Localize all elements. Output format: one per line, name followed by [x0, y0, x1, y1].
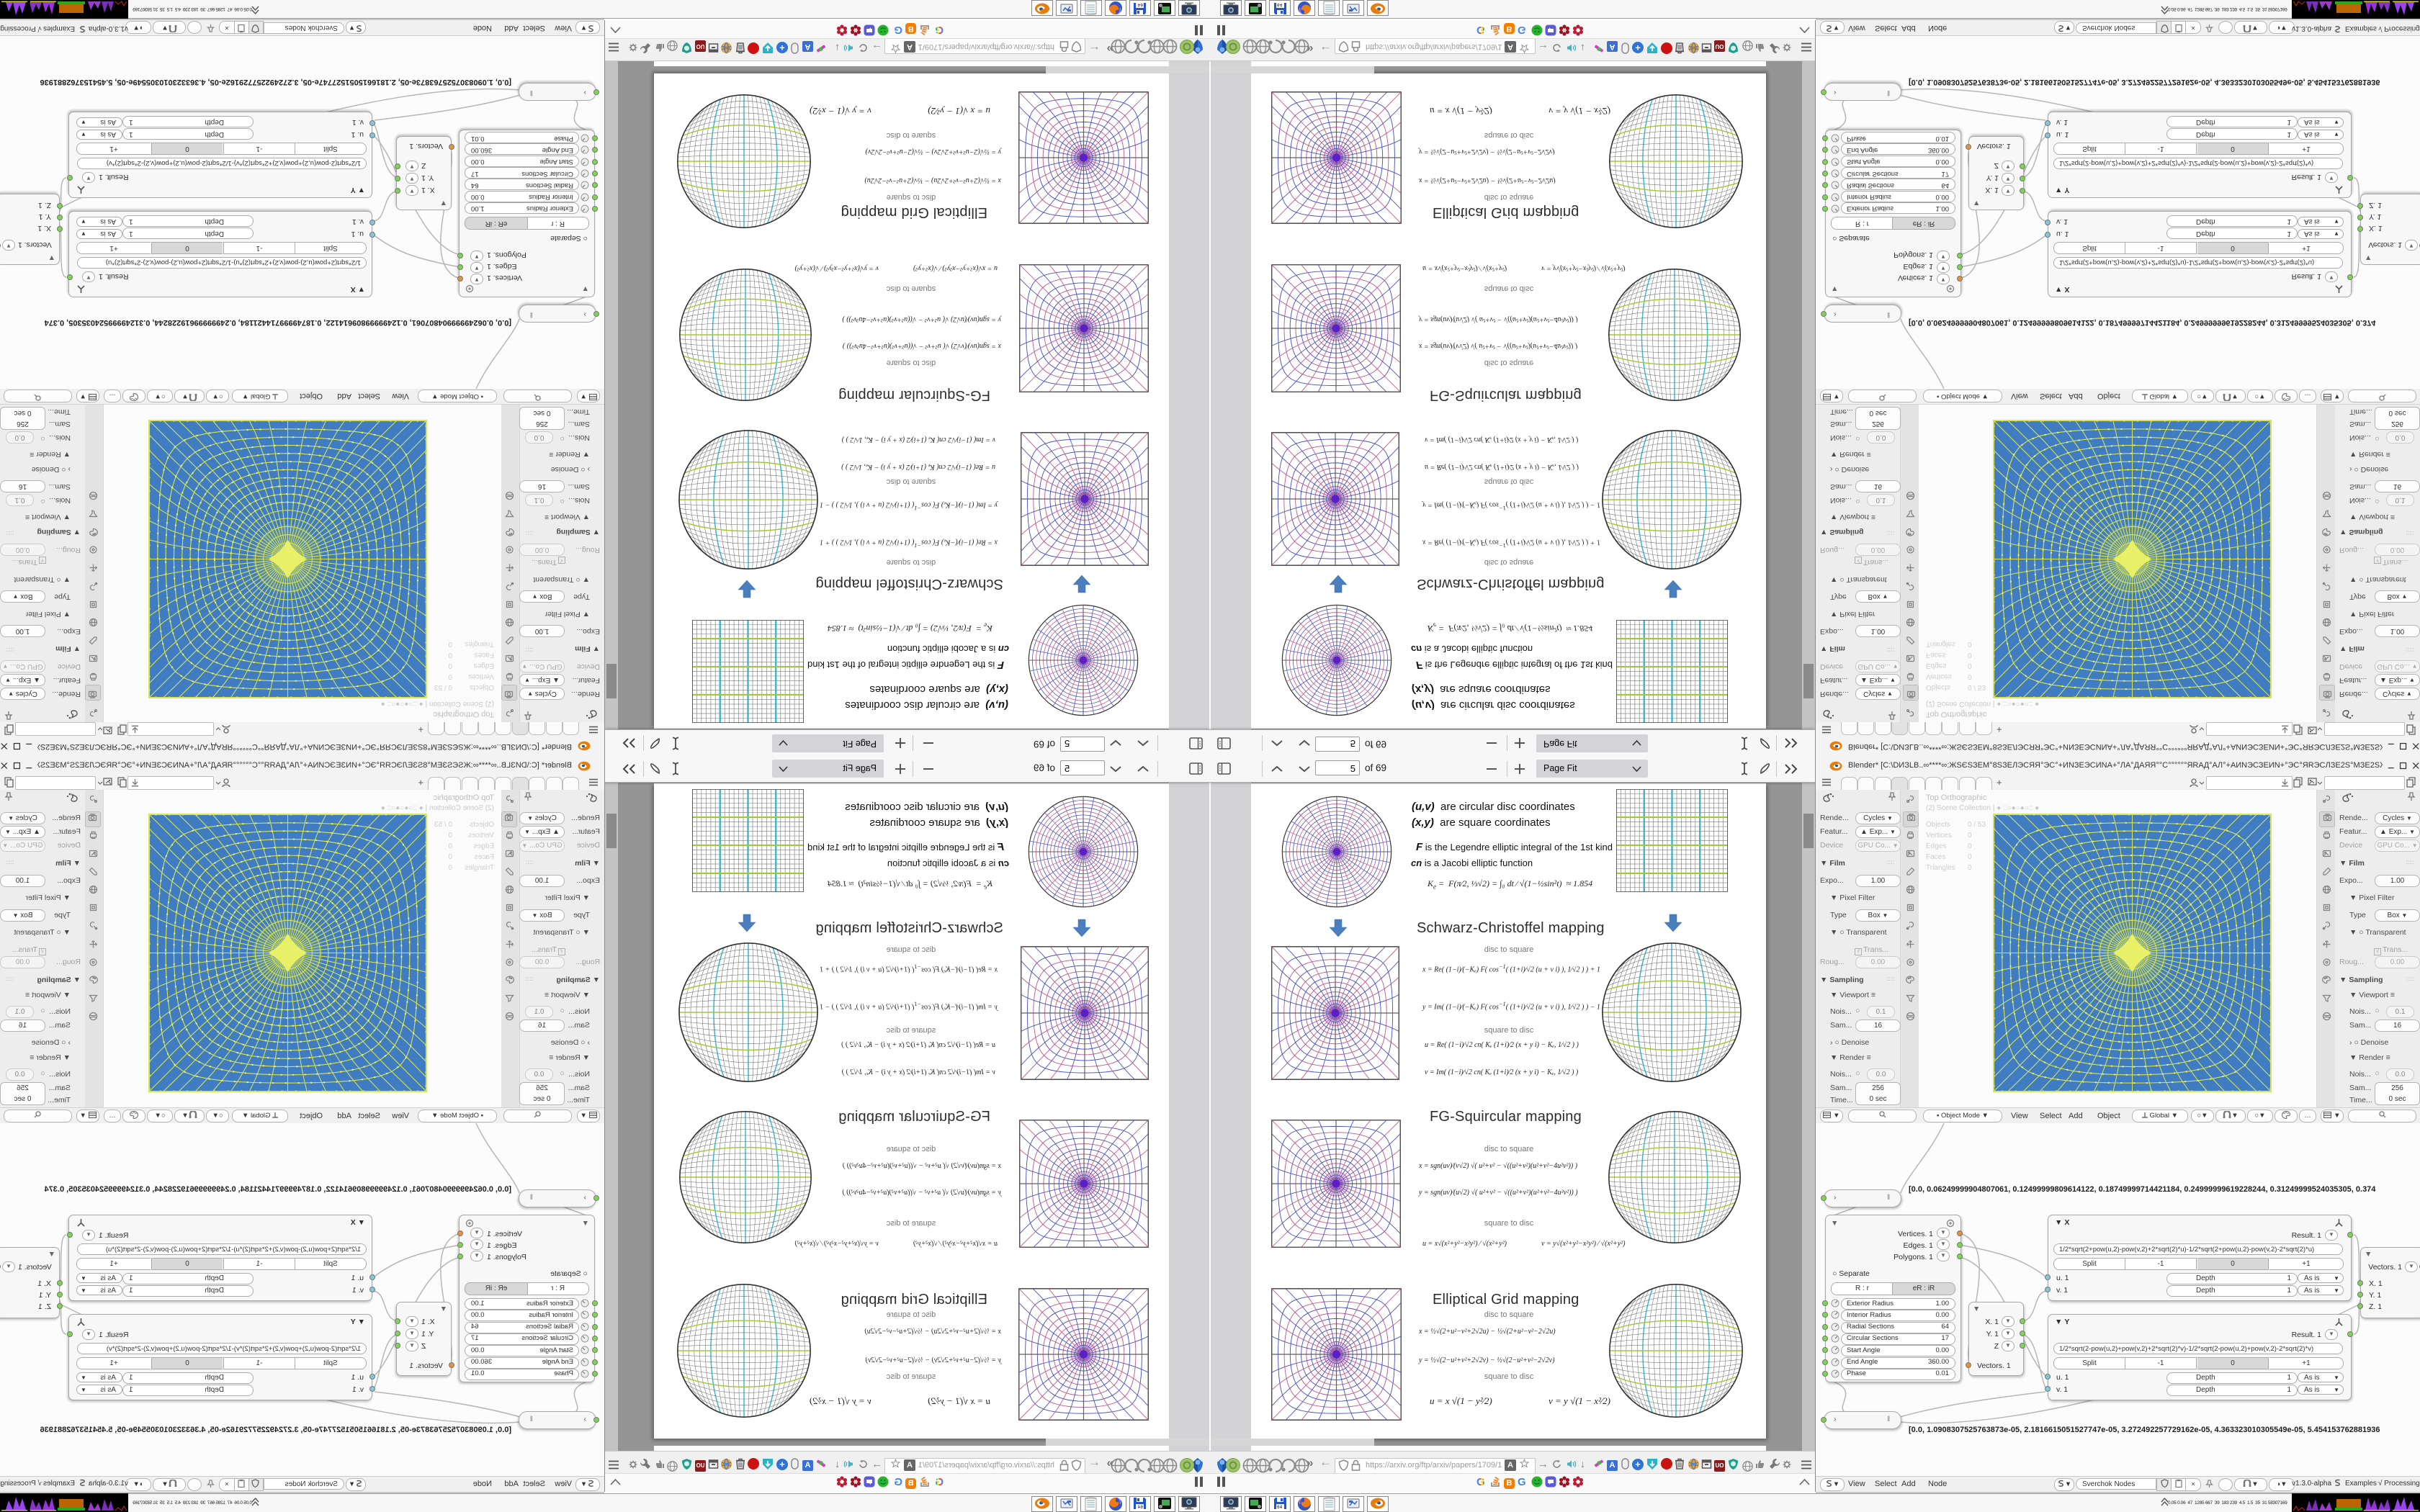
svg-text:64: 64 [1138, 2, 1144, 7]
svg-text:64: 64 [1138, 1505, 1144, 1510]
svg-text:64: 64 [1277, 2, 1283, 7]
svg-text:64: 64 [1277, 1505, 1283, 1510]
